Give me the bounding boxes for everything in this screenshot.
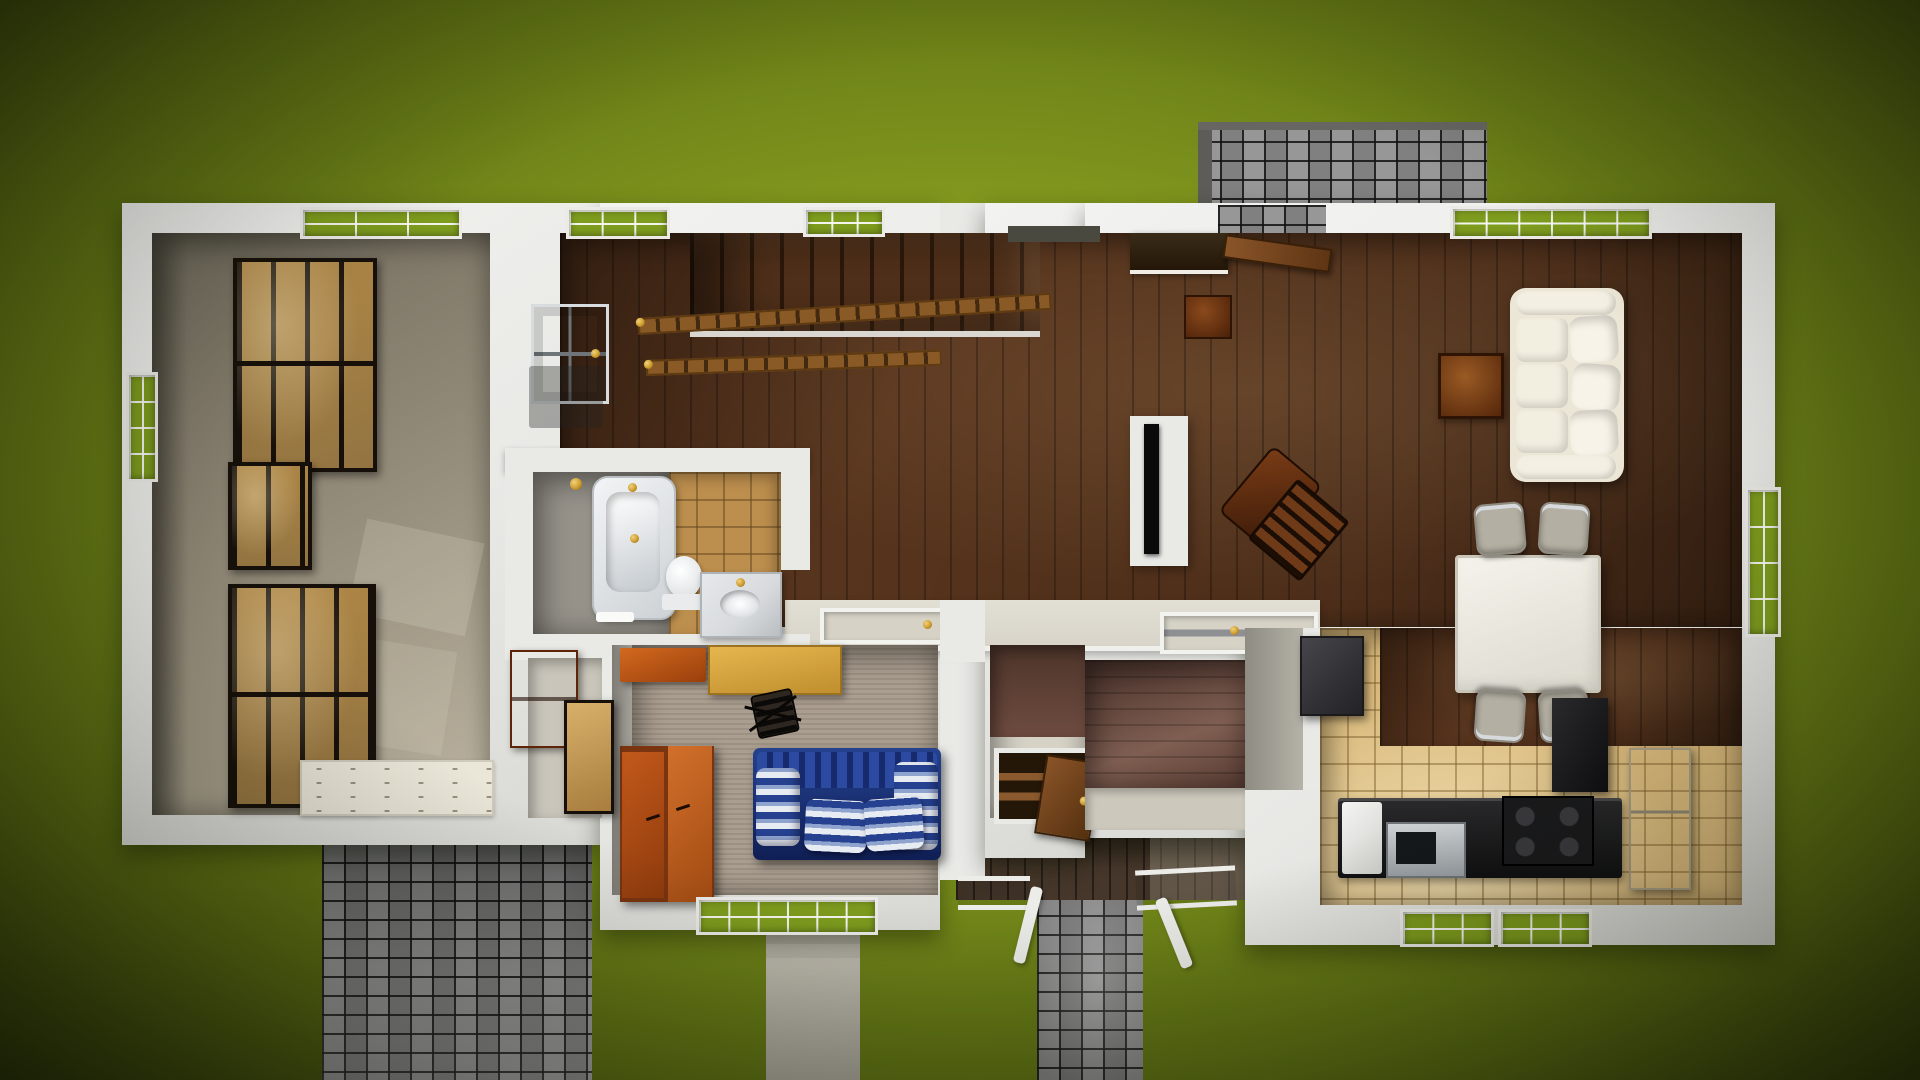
sink-bowl — [720, 590, 760, 618]
hall-window-top — [803, 207, 885, 237]
foyer-window-top — [566, 207, 670, 239]
front-door-mat — [529, 366, 603, 428]
flat-tv — [1144, 424, 1159, 554]
garage-wall-face-left — [152, 233, 188, 815]
kitchen-window-2 — [1498, 909, 1592, 947]
tray-knob — [923, 620, 932, 629]
side-table-small — [1184, 295, 1232, 339]
side-table-large — [1438, 353, 1504, 419]
beige-refrigerator — [1629, 748, 1691, 890]
rack-shelf-bar — [237, 361, 373, 366]
entry-shadow-strip — [1008, 226, 1100, 242]
toilet-bowl — [666, 556, 702, 598]
right-wall-window — [1745, 487, 1781, 637]
deck-railing-right — [1135, 865, 1237, 910]
sofa-seat-cushion — [1516, 364, 1568, 408]
garage-window-top — [300, 207, 462, 239]
counter-tray-1 — [820, 608, 946, 644]
garage-door-panel — [300, 760, 494, 816]
hall-vinyl-strip — [1085, 788, 1245, 830]
tray-knob — [1230, 626, 1239, 635]
rear-walkway-light — [1037, 896, 1143, 1080]
dining-chair — [1473, 501, 1527, 557]
living-window-top — [1450, 206, 1652, 239]
rack-shelf-bar — [232, 692, 372, 697]
floorplan-render: Top-down 3D render of a single-story hou… — [0, 0, 1920, 1080]
driveway-shading — [322, 843, 592, 1080]
bathroom-wall-left — [505, 470, 533, 660]
sofa-seat-cushion — [1516, 318, 1568, 362]
toilet-tank — [662, 594, 704, 610]
couch-seat-cushion — [863, 796, 924, 852]
blue-couch — [753, 748, 941, 860]
side-steps — [766, 928, 860, 1080]
dining-table — [1455, 555, 1601, 693]
microwave — [1386, 822, 1466, 878]
newel-post-knob — [644, 360, 653, 369]
vanity-sink — [700, 572, 782, 638]
dishwasher — [1342, 802, 1382, 874]
kitchen-window-1 — [1400, 909, 1494, 947]
deck-railing-left — [958, 876, 1030, 910]
charcoal-refrigerator — [1300, 636, 1364, 716]
sofa-back-pillow — [1570, 362, 1621, 411]
orange-wardrobe — [620, 746, 714, 902]
bathroom-wall-right — [781, 448, 810, 570]
hall-floor — [1085, 660, 1245, 790]
tub-faucet — [628, 483, 637, 492]
kitchen-west-wall-face — [1245, 628, 1303, 790]
newel-post-knob — [635, 318, 645, 328]
stove — [1502, 796, 1594, 866]
microwave-window — [1396, 832, 1436, 864]
storage-rack-1 — [233, 258, 377, 472]
dark-console-cabinet — [1130, 233, 1228, 274]
storage-crate — [564, 700, 614, 814]
sofa-back-pillow — [1569, 409, 1619, 456]
garage-window-left — [126, 372, 158, 482]
mudroom-wood-section — [990, 645, 1085, 737]
tub-drain — [630, 534, 639, 543]
dining-chair — [1537, 501, 1591, 556]
rear-patio-edge-top — [1198, 122, 1487, 130]
tv-partition-wall — [1130, 416, 1188, 566]
sofa-arm-bottom — [1516, 455, 1616, 479]
couch-seat-cushion — [804, 798, 869, 853]
bath-towel — [596, 612, 634, 622]
sofa-arm-top — [1516, 291, 1616, 315]
white-sofa — [1510, 288, 1624, 482]
sofa-back-pillow — [1568, 314, 1619, 363]
sofa-seat-cushion — [1516, 410, 1568, 453]
black-pantry-cabinet — [1552, 698, 1608, 792]
wardrobe-left-door — [622, 752, 664, 898]
bathroom-wall-top — [505, 448, 810, 472]
door-knob — [591, 349, 600, 358]
patio-door-opening — [1218, 205, 1326, 233]
overhead-cabinet — [620, 648, 706, 682]
bedroom-double-window — [696, 897, 878, 935]
dining-chair — [1473, 688, 1527, 743]
storage-rack-2 — [228, 462, 312, 570]
wardrobe-right-door — [668, 746, 712, 902]
sink-faucet — [736, 578, 745, 587]
couch-arm-pillow-left — [756, 768, 800, 846]
foyer-column-patch — [940, 600, 985, 662]
shower-head — [570, 478, 582, 490]
